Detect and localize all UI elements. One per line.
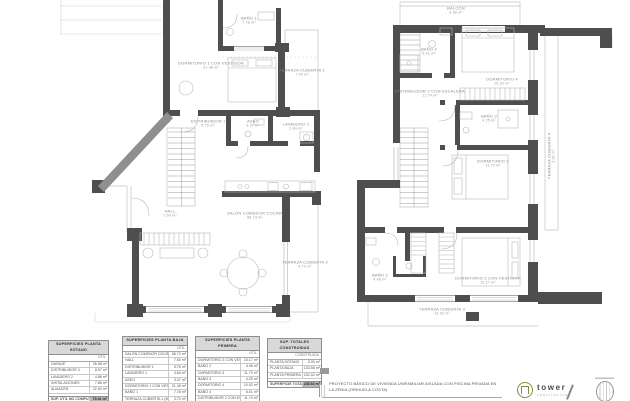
table-title: SUPERFICIES PLANTA SÓTANO: [49, 341, 108, 355]
table-superficies-primera: SUPERFICIES PLANTA PRIMERA ÚTIL DORMITOR…: [195, 336, 260, 401]
room-label-salon-comedor-cocina: SALÓN COMEDOR COCINA58.73 m²: [227, 210, 283, 219]
stamp-caption: [595, 377, 614, 379]
tower-logo: tower ARQUITECTURA: [517, 382, 571, 398]
room-label-terraza-cubierta-4: TERRAZA CUBIERTA 43.62 m²: [546, 133, 555, 179]
table-title: SUPERFICIES PLANTA BAJA: [123, 337, 187, 346]
room-label-dormitorio-4: DORMITORIO 410.92 m²: [486, 76, 518, 85]
project-title: PROYECTO BÁSICO DE VIVIENDA UNIFAMILIAR …: [329, 381, 514, 393]
plan-baja-stairs: [168, 128, 195, 206]
plan-primera-stairs: [400, 35, 428, 207]
room-label-distribuidor-1: DISTRIBUIDOR 15.75 m²: [191, 118, 226, 127]
titleblock-divider: [322, 397, 502, 398]
room-label-aseo: ASEO3.37 m²: [246, 118, 260, 127]
room-label-terraza-cubierta-3: TERRAZA CUBIERTA 313.02 m²: [419, 306, 465, 315]
table-footer-row: SUPERFICIE TOTAL235.60 m²: [268, 381, 321, 387]
table-superficies-baja: SUPERFICIES PLANTA BAJA ÚTIL SALÓN COMED…: [122, 336, 188, 401]
room-label-hall: HALL7.60 m²: [163, 208, 177, 217]
project-title-line1: PROYECTO BÁSICO DE VIVIENDA UNIFAMILIAR …: [329, 381, 496, 386]
table-row: DISTRIBUIDOR 2 CON ESCALERA11.74 m²: [196, 396, 259, 401]
room-label-terraza-cubierta-2: TERRAZA CUBIERTA 24.73 m²: [282, 259, 328, 268]
table-title: SUPERFICIES PLANTA PRIMERA: [196, 337, 259, 351]
project-title-line2: LA ZENIA (ORIHUELA COSTA): [329, 387, 387, 392]
room-label-bano-3: BAÑO 34.25 m²: [481, 113, 497, 122]
table-title: SUP. TOTALES CONSTRUIDAS: [268, 339, 321, 353]
plan-baja-diagonal-wall: [98, 112, 173, 192]
tower-logo-name: tower: [537, 384, 571, 392]
table-footer-row: SUP. ÚTIL NO COMPUTABLE70.41 m²: [49, 396, 108, 401]
table-superficies-sotano: SUPERFICIES PLANTA SÓTANO ÚTIL GARAJE26.…: [48, 340, 109, 401]
titleblock-vertical-text-bars: [319, 385, 326, 397]
architectural-sheet: BAÑO 17.78 m² DORMITORIO 1 CON VESTIDOR2…: [0, 0, 630, 401]
plan-primera-furniture: [366, 28, 525, 286]
room-label-bano-1: BAÑO 17.78 m²: [241, 15, 257, 24]
tower-logo-icon: [517, 382, 533, 398]
room-label-terraza-cubierta-1: TERRAZA CUBIERTA 17.40 m²: [279, 67, 325, 76]
room-label-bano-4: BAÑO 45.01 m²: [421, 46, 437, 55]
room-label-bano-2: BAÑO 24.46 m²: [372, 272, 388, 281]
room-label-dormitorio-1: DORMITORIO 1 CON VESTIDOR21.38 m²: [178, 60, 244, 69]
stamp-icon: [596, 381, 614, 401]
table-row: PLANTA PRIMERA102.02 m²: [268, 373, 321, 379]
table-totales-construidas: SUP. TOTALES CONSTRUIDAS CONSTRUIDA PLAN…: [267, 338, 322, 388]
room-label-dormitorio-3: DORMITORIO 311.73 m²: [477, 158, 509, 167]
room-label-dormitorio-2: DORMITORIO 2 CON VESTIDOR15.17 m²: [455, 275, 521, 284]
table-row: ALMACÉN22.50 m²: [49, 387, 108, 393]
tower-logo-subtitle: ARQUITECTURA: [537, 393, 571, 397]
room-label-balcon: BALCÓN6.98 m²: [447, 5, 465, 14]
room-label-lavadero-1: LAVADERO 13.84 m²: [283, 121, 310, 130]
room-label-distribuidor-2: DISTRIBUIDOR 2 CON ESCALERA11.74 m²: [395, 88, 465, 97]
table-row: TERRAZA CUBIERTA 1 (50%)3.70 m²: [123, 397, 187, 401]
titleblock-marker-box: [320, 368, 329, 374]
